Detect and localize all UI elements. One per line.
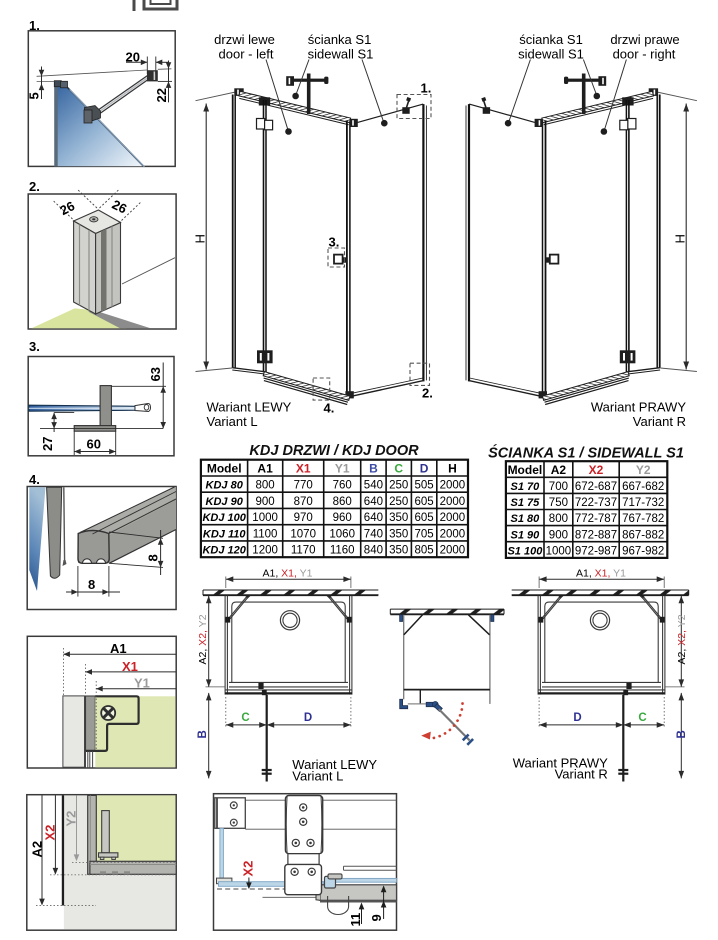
svg-text:Wariant PRAWY: Wariant PRAWY	[591, 400, 686, 415]
svg-text:800: 800	[549, 513, 568, 525]
svg-text:740: 740	[364, 528, 383, 540]
svg-text:X1: X1	[296, 462, 311, 476]
svg-text:2000: 2000	[440, 528, 466, 540]
svg-text:A1, X1, Y1: A1, X1, Y1	[576, 568, 626, 580]
svg-text:C: C	[241, 712, 249, 724]
svg-text:Y2: Y2	[64, 811, 79, 827]
svg-text:KDJ 100: KDJ 100	[202, 512, 246, 524]
svg-text:900: 900	[549, 529, 568, 541]
svg-text:Variant R: Variant R	[555, 767, 608, 782]
svg-text:505: 505	[415, 480, 434, 492]
svg-text:750: 750	[549, 497, 568, 509]
svg-text:672-687: 672-687	[575, 481, 617, 493]
svg-text:Y1: Y1	[335, 462, 350, 476]
svg-text:A1: A1	[257, 462, 273, 476]
svg-text:S1 100: S1 100	[507, 545, 543, 557]
svg-text:772-787: 772-787	[575, 513, 617, 525]
svg-text:1160: 1160	[330, 545, 355, 557]
svg-text:1200: 1200	[252, 545, 278, 557]
svg-text:ścianka S1: ścianka S1	[308, 32, 372, 47]
svg-text:960: 960	[333, 512, 352, 524]
svg-text:X2: X2	[589, 463, 604, 477]
svg-text:9: 9	[369, 914, 384, 921]
svg-text:972-987: 972-987	[575, 545, 617, 557]
svg-text:2.: 2.	[422, 386, 433, 401]
svg-text:1000: 1000	[252, 512, 278, 524]
svg-text:8: 8	[88, 577, 95, 592]
svg-text:722-737: 722-737	[575, 497, 617, 509]
svg-text:H: H	[193, 234, 208, 243]
svg-text:H: H	[673, 234, 688, 243]
svg-text:800: 800	[256, 480, 275, 492]
svg-text:705: 705	[415, 528, 434, 540]
svg-text:2000: 2000	[440, 545, 466, 557]
svg-text:Wariant LEWY: Wariant LEWY	[207, 400, 292, 415]
svg-text:1100: 1100	[253, 528, 278, 540]
svg-text:8: 8	[146, 554, 161, 561]
svg-text:350: 350	[389, 545, 408, 557]
svg-text:717-732: 717-732	[622, 497, 664, 509]
svg-text:KDJ 120: KDJ 120	[202, 545, 246, 557]
svg-text:H: H	[448, 462, 457, 476]
svg-text:767-782: 767-782	[622, 513, 664, 525]
svg-text:605: 605	[415, 496, 434, 508]
svg-text:sidewall S1: sidewall S1	[308, 47, 374, 62]
svg-text:350: 350	[389, 512, 408, 524]
svg-text:1000: 1000	[546, 545, 572, 557]
svg-text:B: B	[369, 462, 378, 476]
svg-text:B: B	[676, 730, 688, 738]
svg-text:Y2: Y2	[636, 463, 651, 477]
svg-text:900: 900	[256, 496, 275, 508]
svg-text:ścianka S1: ścianka S1	[519, 32, 583, 47]
svg-text:2.: 2.	[29, 179, 40, 194]
svg-text:C: C	[394, 462, 403, 476]
svg-text:2000: 2000	[440, 496, 466, 508]
svg-text:350: 350	[389, 528, 408, 540]
svg-text:4.: 4.	[324, 401, 335, 416]
svg-text:22: 22	[154, 88, 169, 102]
svg-text:A2, X2, Y2: A2, X2, Y2	[197, 614, 209, 664]
svg-text:840: 840	[364, 545, 383, 557]
svg-text:860: 860	[333, 496, 352, 508]
svg-text:805: 805	[415, 545, 434, 557]
svg-text:S1 75: S1 75	[511, 497, 541, 509]
svg-text:Variant L: Variant L	[292, 769, 343, 784]
svg-text:D: D	[304, 712, 312, 724]
svg-text:1.: 1.	[421, 81, 432, 96]
svg-text:A1, X1, Y1: A1, X1, Y1	[262, 568, 312, 580]
svg-text:870: 870	[294, 496, 313, 508]
svg-text:S1 70: S1 70	[511, 481, 541, 493]
svg-text:605: 605	[415, 512, 434, 524]
svg-text:250: 250	[389, 496, 408, 508]
svg-text:A2: A2	[30, 841, 45, 858]
svg-text:Model: Model	[207, 462, 242, 476]
svg-text:Variant R: Variant R	[633, 414, 686, 429]
svg-text:X2: X2	[241, 861, 256, 877]
svg-text:door - left: door - left	[219, 47, 274, 62]
svg-text:770: 770	[294, 480, 313, 492]
svg-text:B: B	[197, 730, 209, 738]
svg-text:sidewall S1: sidewall S1	[518, 47, 584, 62]
svg-text:S1 80: S1 80	[511, 513, 541, 525]
svg-text:KDJ 80: KDJ 80	[206, 480, 244, 492]
svg-text:27: 27	[40, 437, 55, 451]
svg-text:KDJ 110: KDJ 110	[203, 528, 246, 540]
svg-text:60: 60	[87, 437, 101, 452]
svg-text:667-682: 667-682	[622, 481, 664, 493]
svg-text:63: 63	[148, 367, 163, 381]
svg-text:760: 760	[333, 480, 352, 492]
svg-text:2000: 2000	[440, 512, 466, 524]
svg-text:700: 700	[549, 481, 568, 493]
svg-text:A2, X2, Y2: A2, X2, Y2	[676, 614, 688, 664]
svg-text:A2: A2	[551, 463, 567, 477]
svg-text:X2: X2	[43, 825, 58, 841]
svg-text:970: 970	[294, 512, 313, 524]
svg-text:2000: 2000	[440, 480, 466, 492]
svg-text:3.: 3.	[29, 339, 40, 354]
svg-text:C: C	[638, 712, 646, 724]
svg-text:640: 640	[364, 512, 383, 524]
svg-text:drzwi lewe: drzwi lewe	[214, 32, 275, 47]
svg-text:door - right: door - right	[613, 47, 676, 62]
svg-text:Variant L: Variant L	[207, 414, 258, 429]
svg-text:D: D	[573, 712, 581, 724]
svg-text:250: 250	[389, 480, 408, 492]
svg-text:1170: 1170	[291, 545, 316, 557]
svg-text:540: 540	[364, 480, 383, 492]
svg-text:KDJ 90: KDJ 90	[206, 496, 244, 508]
svg-text:4.: 4.	[29, 472, 40, 487]
svg-text:5: 5	[27, 92, 42, 99]
svg-text:640: 640	[364, 496, 383, 508]
svg-text:867-882: 867-882	[622, 529, 664, 541]
svg-text:872-887: 872-887	[575, 529, 617, 541]
svg-text:3.: 3.	[329, 235, 340, 250]
svg-text:967-982: 967-982	[622, 545, 664, 557]
svg-text:D: D	[420, 462, 429, 476]
svg-text:drzwi prawe: drzwi prawe	[610, 32, 679, 47]
svg-text:Model: Model	[508, 463, 543, 477]
svg-text:S1 90: S1 90	[511, 529, 541, 541]
svg-text:11: 11	[348, 913, 363, 927]
svg-text:1060: 1060	[329, 528, 355, 540]
svg-text:1070: 1070	[290, 528, 316, 540]
svg-text:ŚCIANKA S1 / SIDEWALL S1: ŚCIANKA S1 / SIDEWALL S1	[488, 444, 684, 462]
svg-text:KDJ DRZWI / KDJ DOOR: KDJ DRZWI / KDJ DOOR	[249, 443, 419, 459]
